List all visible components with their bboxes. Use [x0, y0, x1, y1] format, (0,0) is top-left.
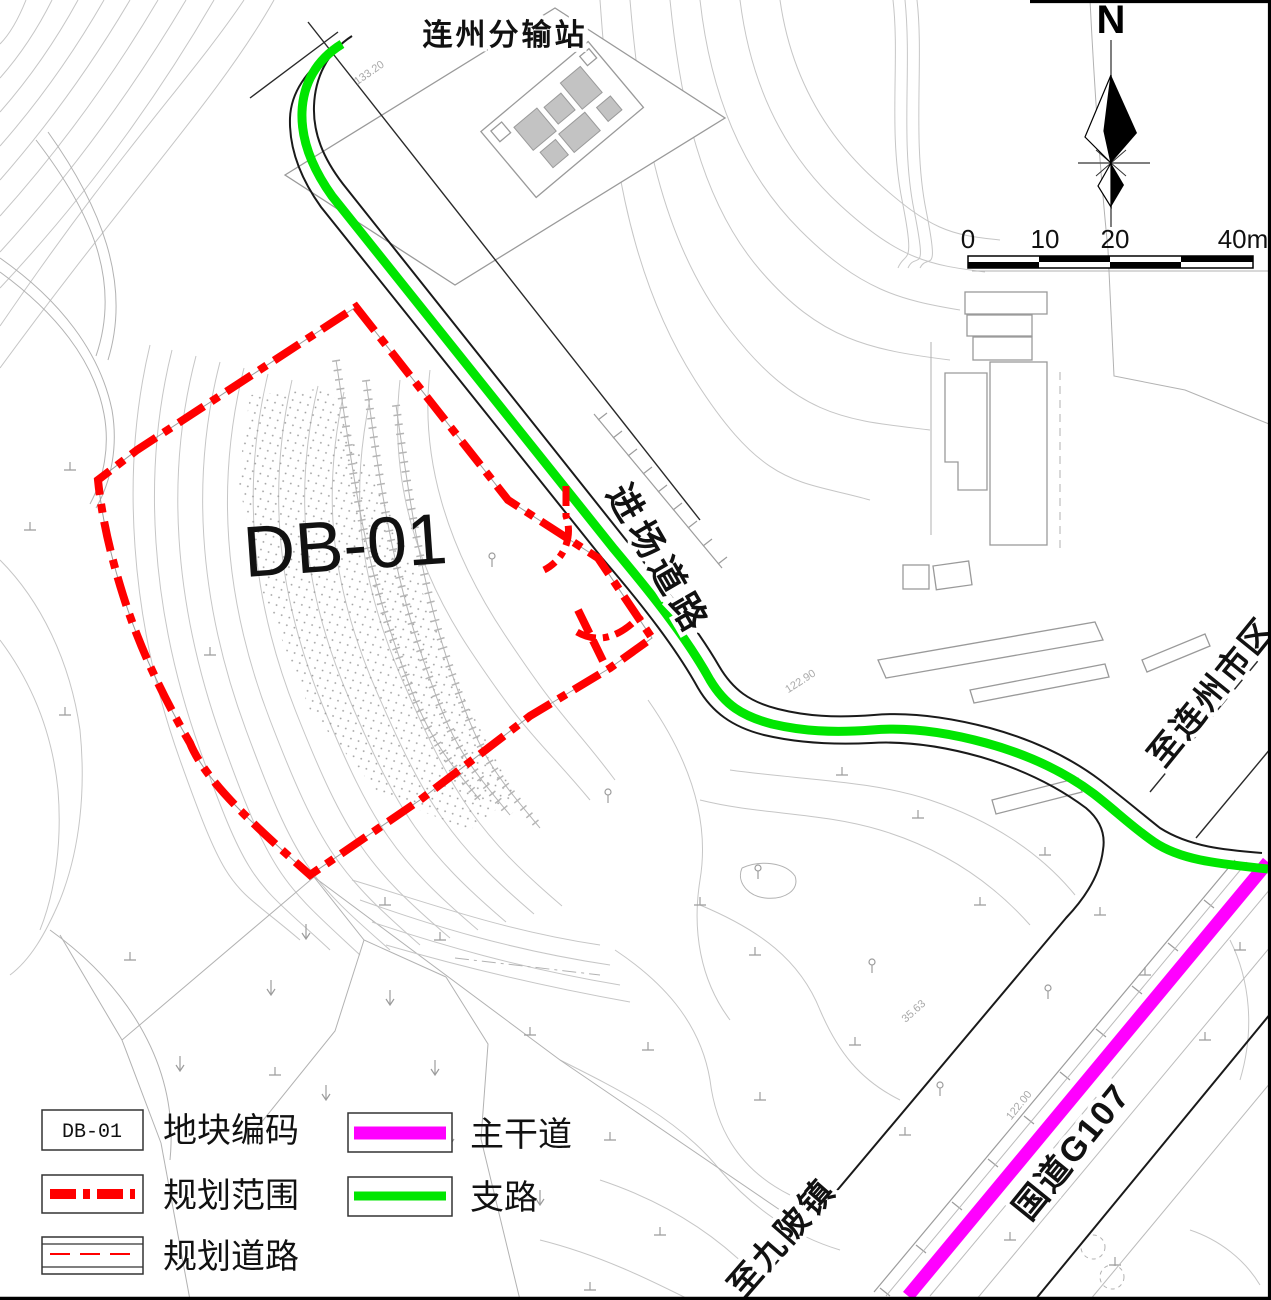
legend: DB-01 地块编码 规划范围 规划道路 主干道 支路 — [42, 1110, 572, 1276]
main-road-line — [908, 862, 1268, 1296]
north-compass: N — [1078, 0, 1150, 227]
legend-main-road-label: 主干道 — [470, 1116, 572, 1154]
scale-tick-0: 0 — [961, 224, 975, 254]
scale-tick-20: 20 — [1101, 224, 1130, 254]
contour-elev-4: 35.63 — [900, 998, 928, 1025]
legend-plot-code-label: 地块编码 — [163, 1112, 299, 1150]
contour-elev-2: 122.90 — [783, 667, 818, 695]
compass-tail-light — [1098, 163, 1111, 207]
north-letter: N — [1097, 0, 1126, 42]
legend-plot-code-sample: DB-01 — [62, 1121, 122, 1144]
contour-elev-1: 133.20 — [352, 59, 386, 88]
scale-bar: 0 10 20 40m — [961, 224, 1269, 268]
legend-planned-road-label: 规划道路 — [163, 1238, 299, 1276]
planning-map-sheet: { "map": { "station_label": "连州分输站", "pl… — [0, 0, 1271, 1300]
slope-hatching — [594, 413, 1235, 1296]
access-road-label: 进场道路 — [599, 477, 719, 643]
legend-planning-boundary-label: 规划范围 — [163, 1177, 299, 1215]
legend-swatch-planned-road — [42, 1237, 143, 1274]
map-canvas: 连州分输站 DB-01 进场道路 至连州市区 至九陂镇 国道G107 133.2… — [0, 0, 1271, 1300]
scale-tick-10: 10 — [1031, 224, 1060, 254]
scale-tick-40: 40m — [1218, 224, 1269, 254]
station-label: 连州分输站 — [423, 19, 588, 52]
legend-branch-road-label: 支路 — [470, 1179, 538, 1217]
g107-road — [886, 645, 1271, 1300]
plot-code-label: DB-01 — [240, 499, 449, 593]
